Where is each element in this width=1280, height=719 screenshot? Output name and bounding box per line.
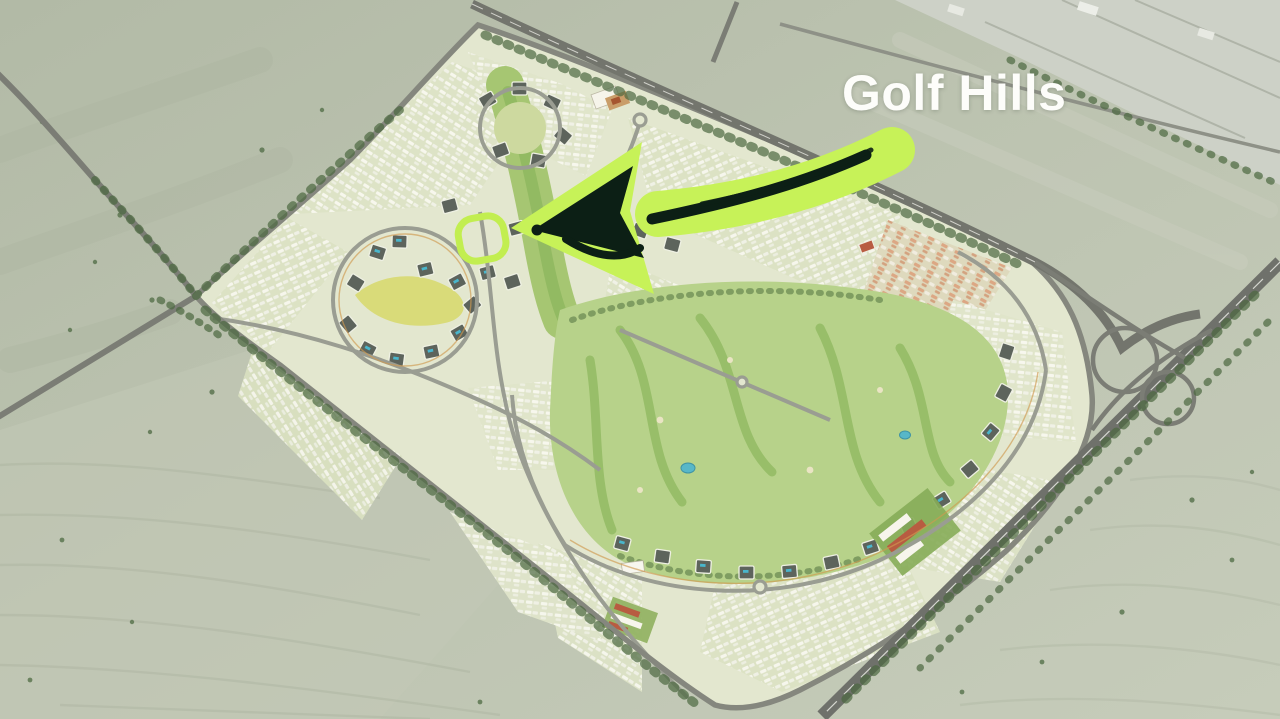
master-plan-map: [0, 0, 1280, 719]
golf-hills-label: Golf Hills: [842, 64, 1066, 122]
golf-hills-location-map: Golf Hills: [0, 0, 1280, 719]
